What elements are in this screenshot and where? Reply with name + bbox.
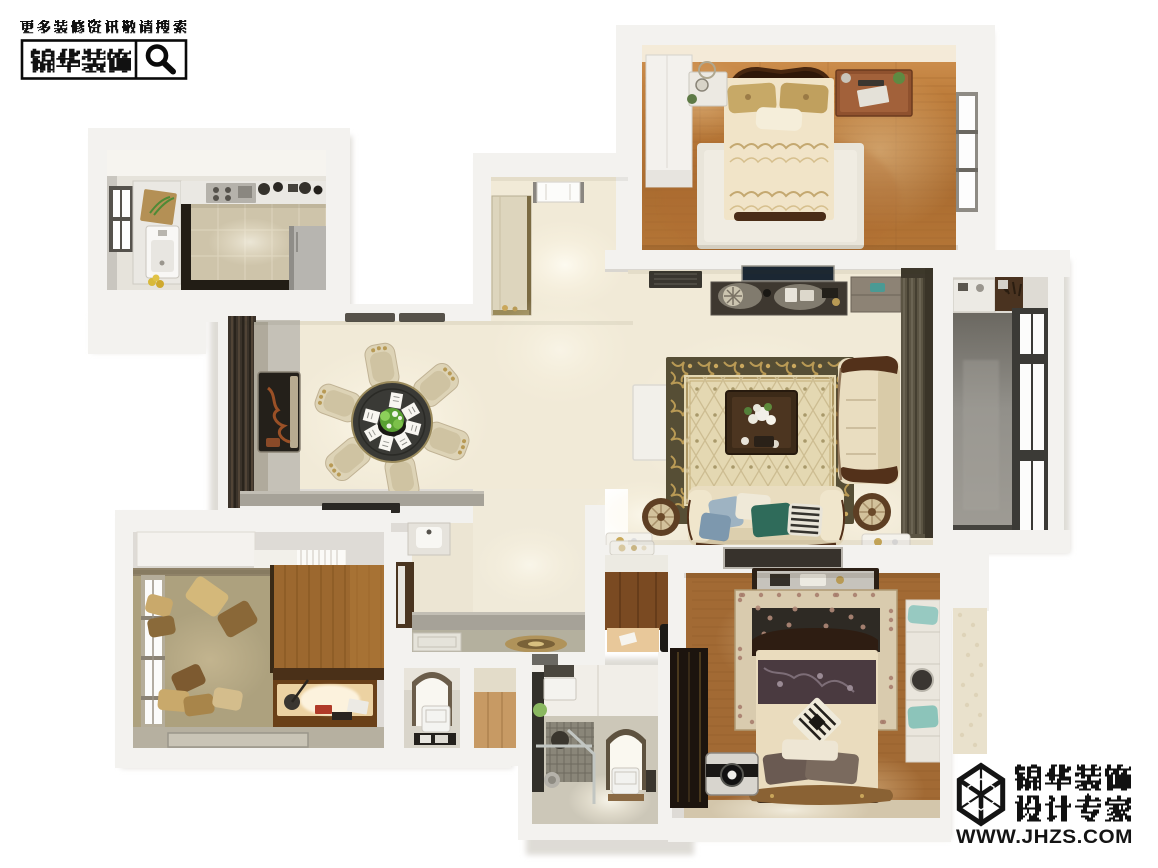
svg-text:WWW.JHZS.COM: WWW.JHZS.COM: [956, 826, 1133, 848]
